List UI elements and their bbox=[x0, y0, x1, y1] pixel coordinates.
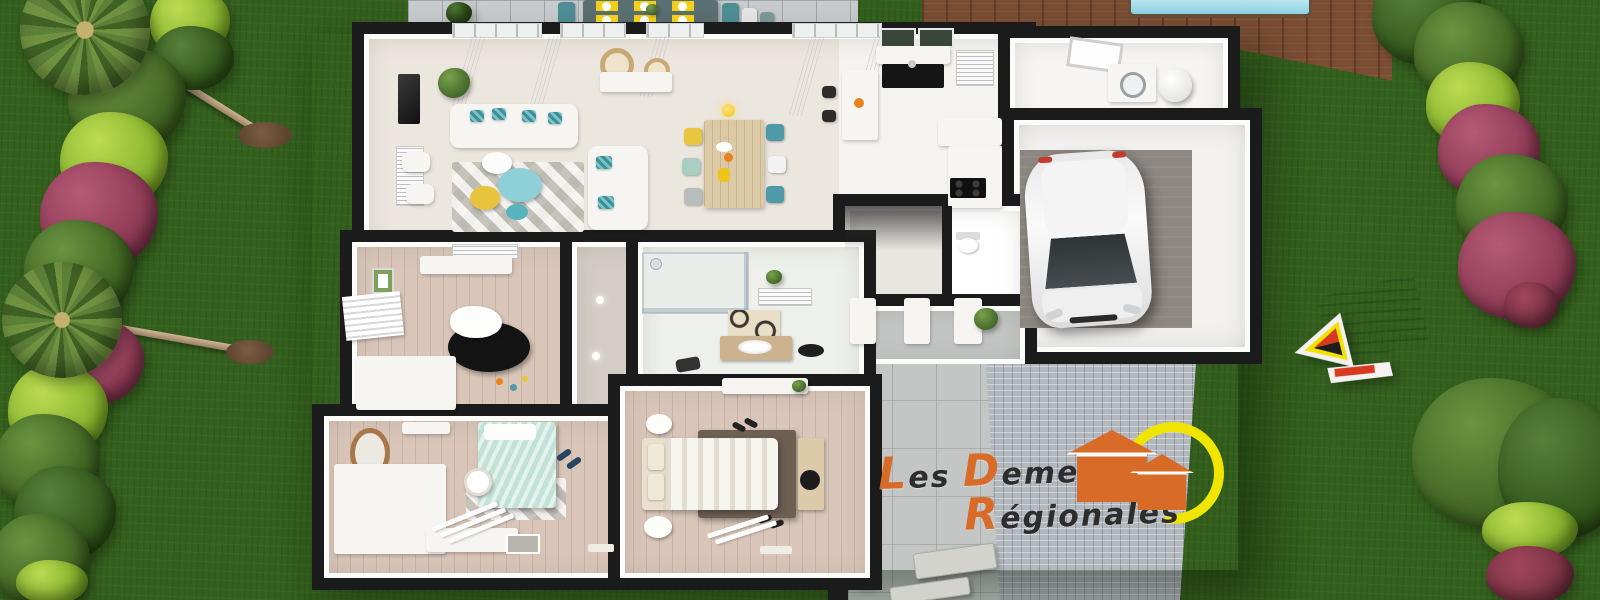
shower-head bbox=[650, 258, 662, 270]
ceiling-light bbox=[596, 296, 604, 304]
dining-chair-teal bbox=[766, 124, 784, 141]
throw-pillow bbox=[598, 196, 614, 209]
bedside-table bbox=[644, 516, 672, 538]
toy bbox=[522, 376, 528, 382]
bar-stool bbox=[822, 86, 836, 98]
bar-stool bbox=[822, 110, 836, 122]
toilet bbox=[958, 238, 978, 253]
serving-plate bbox=[716, 142, 732, 152]
bush bbox=[1486, 546, 1574, 600]
window bbox=[646, 23, 704, 38]
bush bbox=[16, 560, 88, 600]
toy bbox=[496, 378, 503, 385]
shower-glass bbox=[744, 252, 749, 312]
backsplash-art bbox=[728, 310, 780, 338]
kitchen-window bbox=[918, 28, 954, 48]
armchair bbox=[406, 184, 434, 204]
throw-pillow bbox=[596, 156, 612, 169]
kitchen-cabinet bbox=[956, 50, 994, 86]
car-taillight bbox=[1038, 156, 1052, 163]
floor-lamp bbox=[464, 468, 492, 496]
door-mat bbox=[588, 544, 614, 552]
wall-tv bbox=[398, 74, 420, 124]
washer-door bbox=[1120, 72, 1146, 98]
cellier-ceiling-shadow bbox=[845, 206, 945, 250]
ceiling-light bbox=[986, 248, 992, 254]
water-heater bbox=[1158, 68, 1192, 102]
car-windshield bbox=[1042, 233, 1137, 289]
toy bbox=[510, 384, 517, 391]
dining-chair-yellow bbox=[684, 128, 702, 145]
window-blinds bbox=[342, 291, 404, 341]
bush bbox=[1504, 282, 1558, 328]
bed-pillow bbox=[484, 424, 536, 440]
leaning-frame bbox=[506, 534, 540, 554]
wall-picture bbox=[372, 268, 394, 294]
wall-shelf bbox=[420, 256, 512, 274]
coffee-table-yellow bbox=[470, 186, 500, 210]
door-mat bbox=[760, 546, 792, 554]
kitchen-counter bbox=[948, 146, 1002, 208]
porch-post bbox=[850, 298, 876, 344]
dining-chair-teal bbox=[766, 186, 784, 203]
swimming-pool bbox=[1128, 0, 1312, 17]
coffee-table-teal bbox=[498, 168, 542, 202]
yellow-pendant-light bbox=[722, 104, 735, 117]
armchair bbox=[402, 152, 430, 172]
throw-pillow bbox=[492, 108, 506, 120]
dirt-patch bbox=[238, 122, 292, 148]
porch-post bbox=[904, 298, 930, 344]
bedside-table bbox=[646, 414, 672, 434]
window bbox=[452, 23, 542, 38]
logo-initial: R bbox=[963, 489, 1001, 541]
yellow-jug bbox=[718, 168, 730, 182]
kitchen-window bbox=[880, 28, 916, 48]
cooktop bbox=[950, 178, 986, 198]
wc-partition-wall bbox=[942, 206, 952, 296]
floating-shelf bbox=[402, 422, 450, 434]
dining-chair-mint bbox=[682, 158, 700, 175]
patio-bush bbox=[446, 2, 472, 24]
dining-table bbox=[704, 120, 764, 208]
car-roof bbox=[1041, 157, 1130, 237]
logo-initial: L bbox=[877, 448, 909, 500]
fruit bbox=[724, 153, 733, 162]
dining-chair-white bbox=[768, 156, 786, 173]
plate bbox=[678, 2, 687, 11]
plate bbox=[602, 2, 611, 11]
bed-pillow bbox=[648, 474, 664, 500]
logo-word-rest: es bbox=[908, 459, 951, 495]
throw-pillow bbox=[470, 110, 484, 122]
console-table bbox=[600, 72, 672, 92]
bassinet bbox=[450, 306, 502, 338]
window bbox=[792, 23, 882, 38]
black-bowl-sink bbox=[798, 344, 824, 357]
dresser bbox=[356, 356, 456, 410]
dining-chair-grey bbox=[684, 188, 702, 205]
throw-pillow bbox=[548, 112, 562, 124]
floor-plan-render-scene: Les Demeures Régionales bbox=[0, 0, 1600, 600]
ceiling-light bbox=[592, 352, 600, 360]
car bbox=[1020, 148, 1158, 332]
fruit-bowl bbox=[854, 98, 864, 108]
car-taillight bbox=[1112, 151, 1126, 158]
sofa bbox=[450, 104, 578, 148]
throw-pillow bbox=[522, 110, 536, 122]
kitchen-counter bbox=[938, 118, 1002, 146]
patio-chair-teal bbox=[558, 2, 575, 24]
faucet bbox=[908, 60, 916, 68]
desk-chair bbox=[800, 470, 820, 490]
brand-logo: Les Demeures Régionales bbox=[878, 424, 1198, 540]
sink-basin bbox=[738, 340, 772, 354]
double-bed bbox=[666, 438, 778, 510]
bed-pillow bbox=[648, 444, 664, 470]
dirt-patch bbox=[226, 340, 274, 364]
palm-tree-crown bbox=[2, 262, 122, 378]
window bbox=[560, 23, 626, 38]
logo-space bbox=[950, 459, 964, 494]
side-table-teal bbox=[506, 204, 528, 220]
ac-vent bbox=[758, 288, 812, 306]
